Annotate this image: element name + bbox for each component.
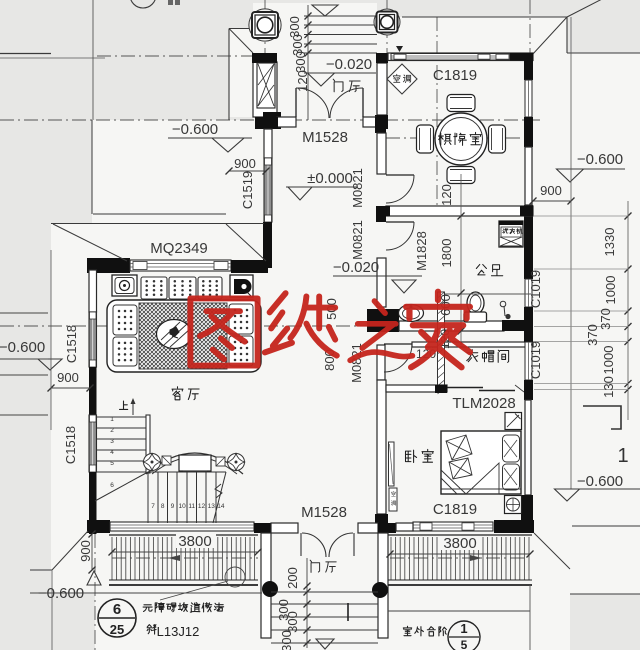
svg-text:130: 130 [601,376,616,398]
svg-text:300: 300 [285,611,300,633]
svg-text:9: 9 [171,503,175,510]
svg-text:7: 7 [151,503,155,510]
svg-text:−0.020: −0.020 [333,259,379,276]
svg-text:1: 1 [460,621,467,636]
svg-text:8: 8 [161,503,165,510]
svg-text:300: 300 [293,51,308,73]
svg-text:900: 900 [57,370,79,385]
svg-text:6: 6 [113,601,121,618]
svg-text:C1519: C1519 [240,171,255,209]
svg-text:5: 5 [110,460,114,467]
svg-text:370: 370 [585,324,600,346]
svg-text:C1518: C1518 [63,426,78,464]
svg-text:1: 1 [110,416,114,423]
svg-text:C1518: C1518 [64,325,79,363]
svg-text:−0.020: −0.020 [326,56,372,73]
svg-text:4: 4 [110,449,114,456]
svg-text:C1819: C1819 [433,67,477,84]
svg-text:2: 2 [110,427,114,434]
svg-text:TLM2028: TLM2028 [452,395,515,412]
svg-text:±0.000: ±0.000 [307,170,353,187]
svg-text:14: 14 [217,503,225,510]
svg-text:1330: 1330 [602,228,617,257]
svg-text:3: 3 [110,438,114,445]
svg-text:120: 120 [439,184,454,206]
svg-text:370: 370 [598,308,613,330]
svg-text:C1019: C1019 [528,270,543,308]
svg-text:−0.600: −0.600 [38,585,84,602]
svg-text:900: 900 [540,183,562,198]
svg-text:−0.600: −0.600 [577,151,623,168]
svg-text:1000: 1000 [601,346,616,375]
svg-text:13: 13 [208,503,216,510]
svg-text:M0821: M0821 [350,168,365,208]
svg-text:6: 6 [110,482,114,489]
svg-text:C1819: C1819 [433,501,477,518]
svg-text:900: 900 [234,156,256,171]
svg-text:C1019: C1019 [528,341,543,379]
svg-text:M1528: M1528 [301,504,347,521]
svg-text:300: 300 [279,630,294,650]
svg-text:5: 5 [461,638,468,650]
svg-text:1000: 1000 [603,276,618,305]
svg-text:1: 1 [617,445,628,467]
svg-text:1800: 1800 [439,239,454,268]
svg-text:M1828: M1828 [414,231,429,271]
svg-text:11: 11 [188,503,195,510]
svg-text:200: 200 [285,567,300,589]
svg-text:25: 25 [110,622,124,637]
svg-text:12: 12 [198,503,206,510]
svg-text:3800: 3800 [178,533,211,550]
svg-text:−0.600: −0.600 [172,121,218,138]
svg-text:10: 10 [178,503,186,510]
svg-text:−0.600: −0.600 [0,339,45,356]
svg-text:3800: 3800 [443,535,476,552]
svg-text:M0821: M0821 [350,220,365,260]
svg-text:L13J12: L13J12 [157,624,200,639]
svg-text:−0.600: −0.600 [577,473,623,490]
svg-text:MQ2349: MQ2349 [150,240,208,257]
svg-text:M1528: M1528 [302,129,348,146]
svg-text:900: 900 [78,540,93,562]
